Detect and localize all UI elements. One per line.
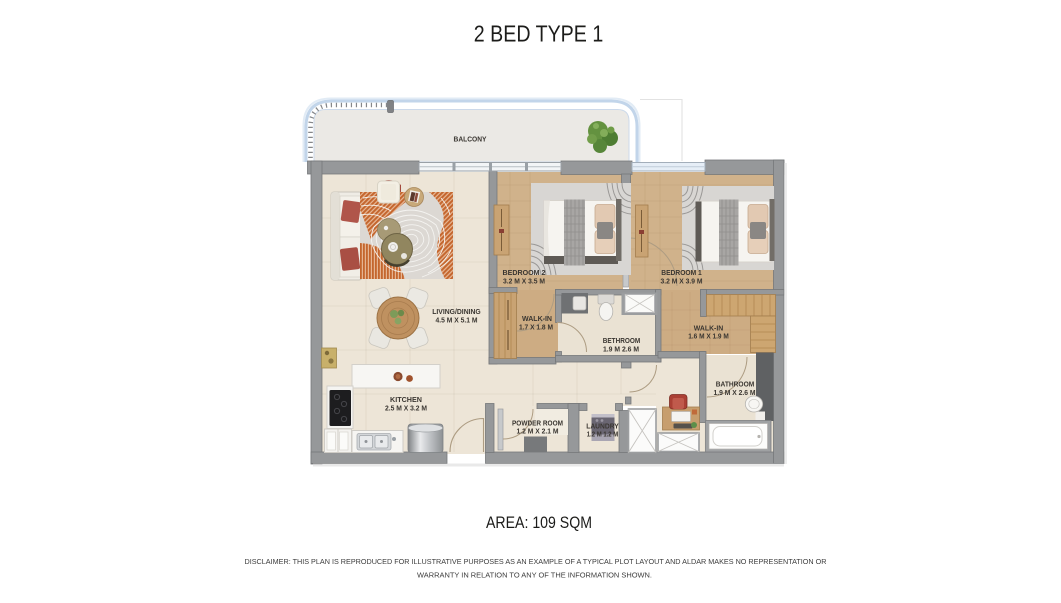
- svg-text:2 BED TYPE 1: 2 BED TYPE 1: [474, 20, 604, 46]
- svg-text:3.2 M X 3.9 M: 3.2 M X 3.9 M: [661, 276, 703, 285]
- svg-text:1.7 X 1.8 M: 1.7 X 1.8 M: [519, 322, 553, 331]
- svg-text:2.5 M X 3.2 M: 2.5 M X 3.2 M: [385, 403, 427, 412]
- svg-text:AREA: 109 SQM: AREA: 109 SQM: [486, 514, 592, 532]
- svg-text:1.6 M X 1.9 M: 1.6 M X 1.9 M: [688, 332, 729, 341]
- svg-text:1.2 M 1.2 M: 1.2 M 1.2 M: [587, 429, 619, 438]
- svg-text:1.9 M 2.6 M: 1.9 M 2.6 M: [603, 344, 639, 353]
- svg-text:WARRANTY IN RELATION TO ANY OF: WARRANTY IN RELATION TO ANY OF THE INFOR…: [417, 573, 652, 580]
- svg-text:3.2 M X 3.5 M: 3.2 M X 3.5 M: [503, 276, 545, 285]
- svg-text:1.9 M X 2.6 M: 1.9 M X 2.6 M: [714, 388, 756, 397]
- svg-text:DISCLAIMER: THIS PLAN IS REPRO: DISCLAIMER: THIS PLAN IS REPRODUCED FOR …: [245, 559, 827, 566]
- svg-text:4.5 M X 5.1 M: 4.5 M X 5.1 M: [436, 315, 478, 324]
- svg-text:1.2 M X 2.1 M: 1.2 M X 2.1 M: [517, 426, 559, 435]
- svg-text:BALCONY: BALCONY: [454, 135, 487, 144]
